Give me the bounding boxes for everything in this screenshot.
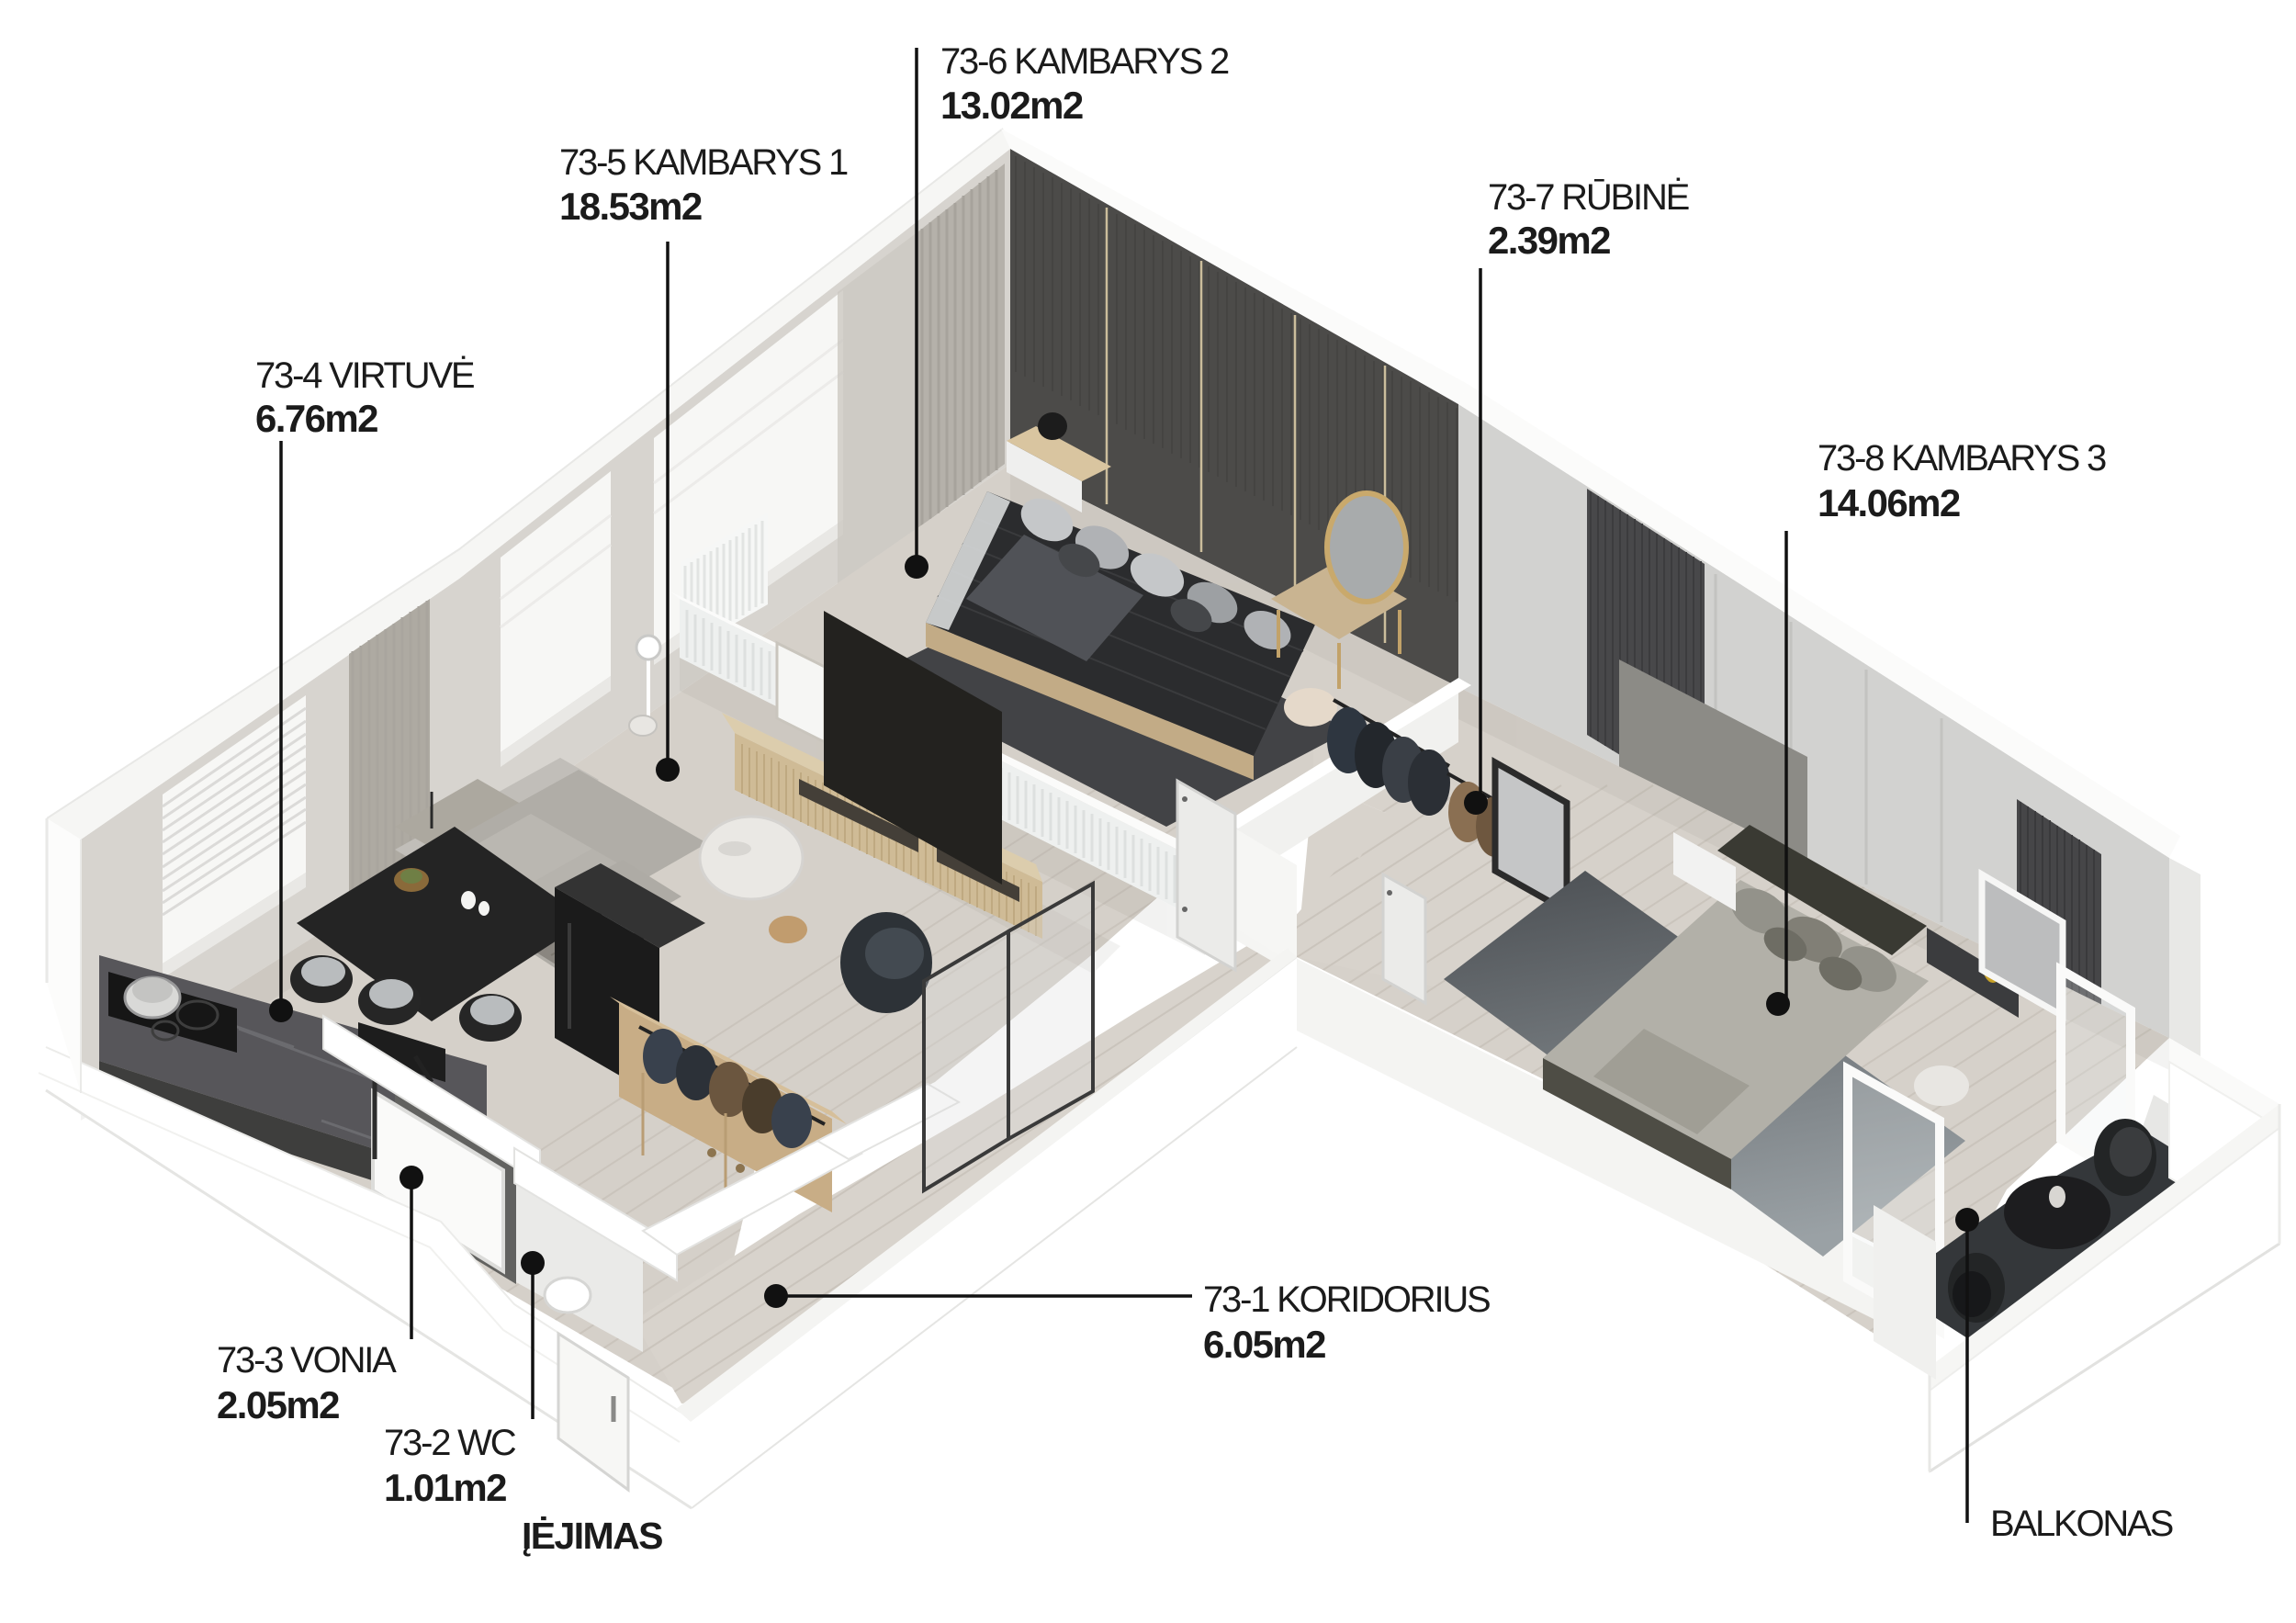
svg-text:ĮĖJIMAS: ĮĖJIMAS bbox=[522, 1515, 662, 1557]
svg-text:73-2 WC: 73-2 WC bbox=[384, 1423, 516, 1463]
svg-text:73-5 KAMBARYS 1: 73-5 KAMBARYS 1 bbox=[559, 142, 848, 183]
svg-text:2.39m2: 2.39m2 bbox=[1488, 219, 1610, 262]
svg-text:1.01m2: 1.01m2 bbox=[384, 1466, 506, 1509]
svg-text:73-4 VIRTUVĖ: 73-4 VIRTUVĖ bbox=[255, 355, 474, 396]
svg-text:13.02m2: 13.02m2 bbox=[940, 84, 1083, 127]
svg-text:6.76m2: 6.76m2 bbox=[255, 397, 377, 440]
svg-text:73-6 KAMBARYS 2: 73-6 KAMBARYS 2 bbox=[940, 41, 1229, 82]
svg-text:6.05m2: 6.05m2 bbox=[1203, 1323, 1325, 1366]
svg-text:BALKONAS: BALKONAS bbox=[1990, 1504, 2173, 1544]
svg-text:73-3 VONIA: 73-3 VONIA bbox=[217, 1340, 397, 1381]
svg-text:14.06m2: 14.06m2 bbox=[1818, 481, 1960, 524]
svg-text:73-1 KORIDORIUS: 73-1 KORIDORIUS bbox=[1203, 1279, 1490, 1320]
svg-text:2.05m2: 2.05m2 bbox=[217, 1383, 339, 1426]
svg-text:73-7 RŪBINĖ: 73-7 RŪBINĖ bbox=[1488, 176, 1689, 218]
svg-text:18.53m2: 18.53m2 bbox=[559, 185, 702, 228]
svg-text:73-8 KAMBARYS 3: 73-8 KAMBARYS 3 bbox=[1818, 438, 2106, 479]
